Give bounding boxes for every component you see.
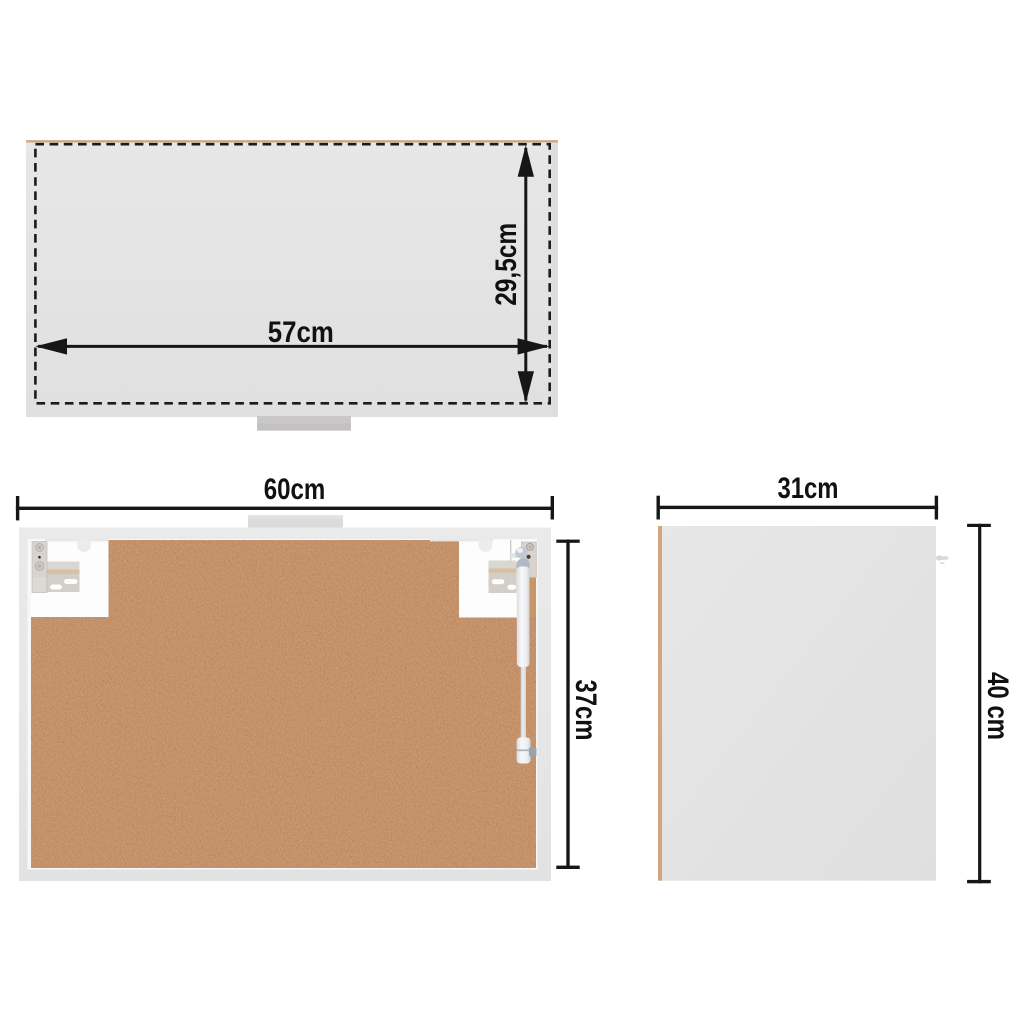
svg-text:37cm: 37cm (569, 680, 602, 741)
svg-text:31cm: 31cm (778, 472, 839, 505)
svg-text:57cm: 57cm (268, 316, 334, 349)
svg-text:60cm: 60cm (264, 473, 326, 506)
svg-text:40 cm: 40 cm (981, 672, 1014, 740)
svg-text:29,5cm: 29,5cm (490, 223, 523, 306)
